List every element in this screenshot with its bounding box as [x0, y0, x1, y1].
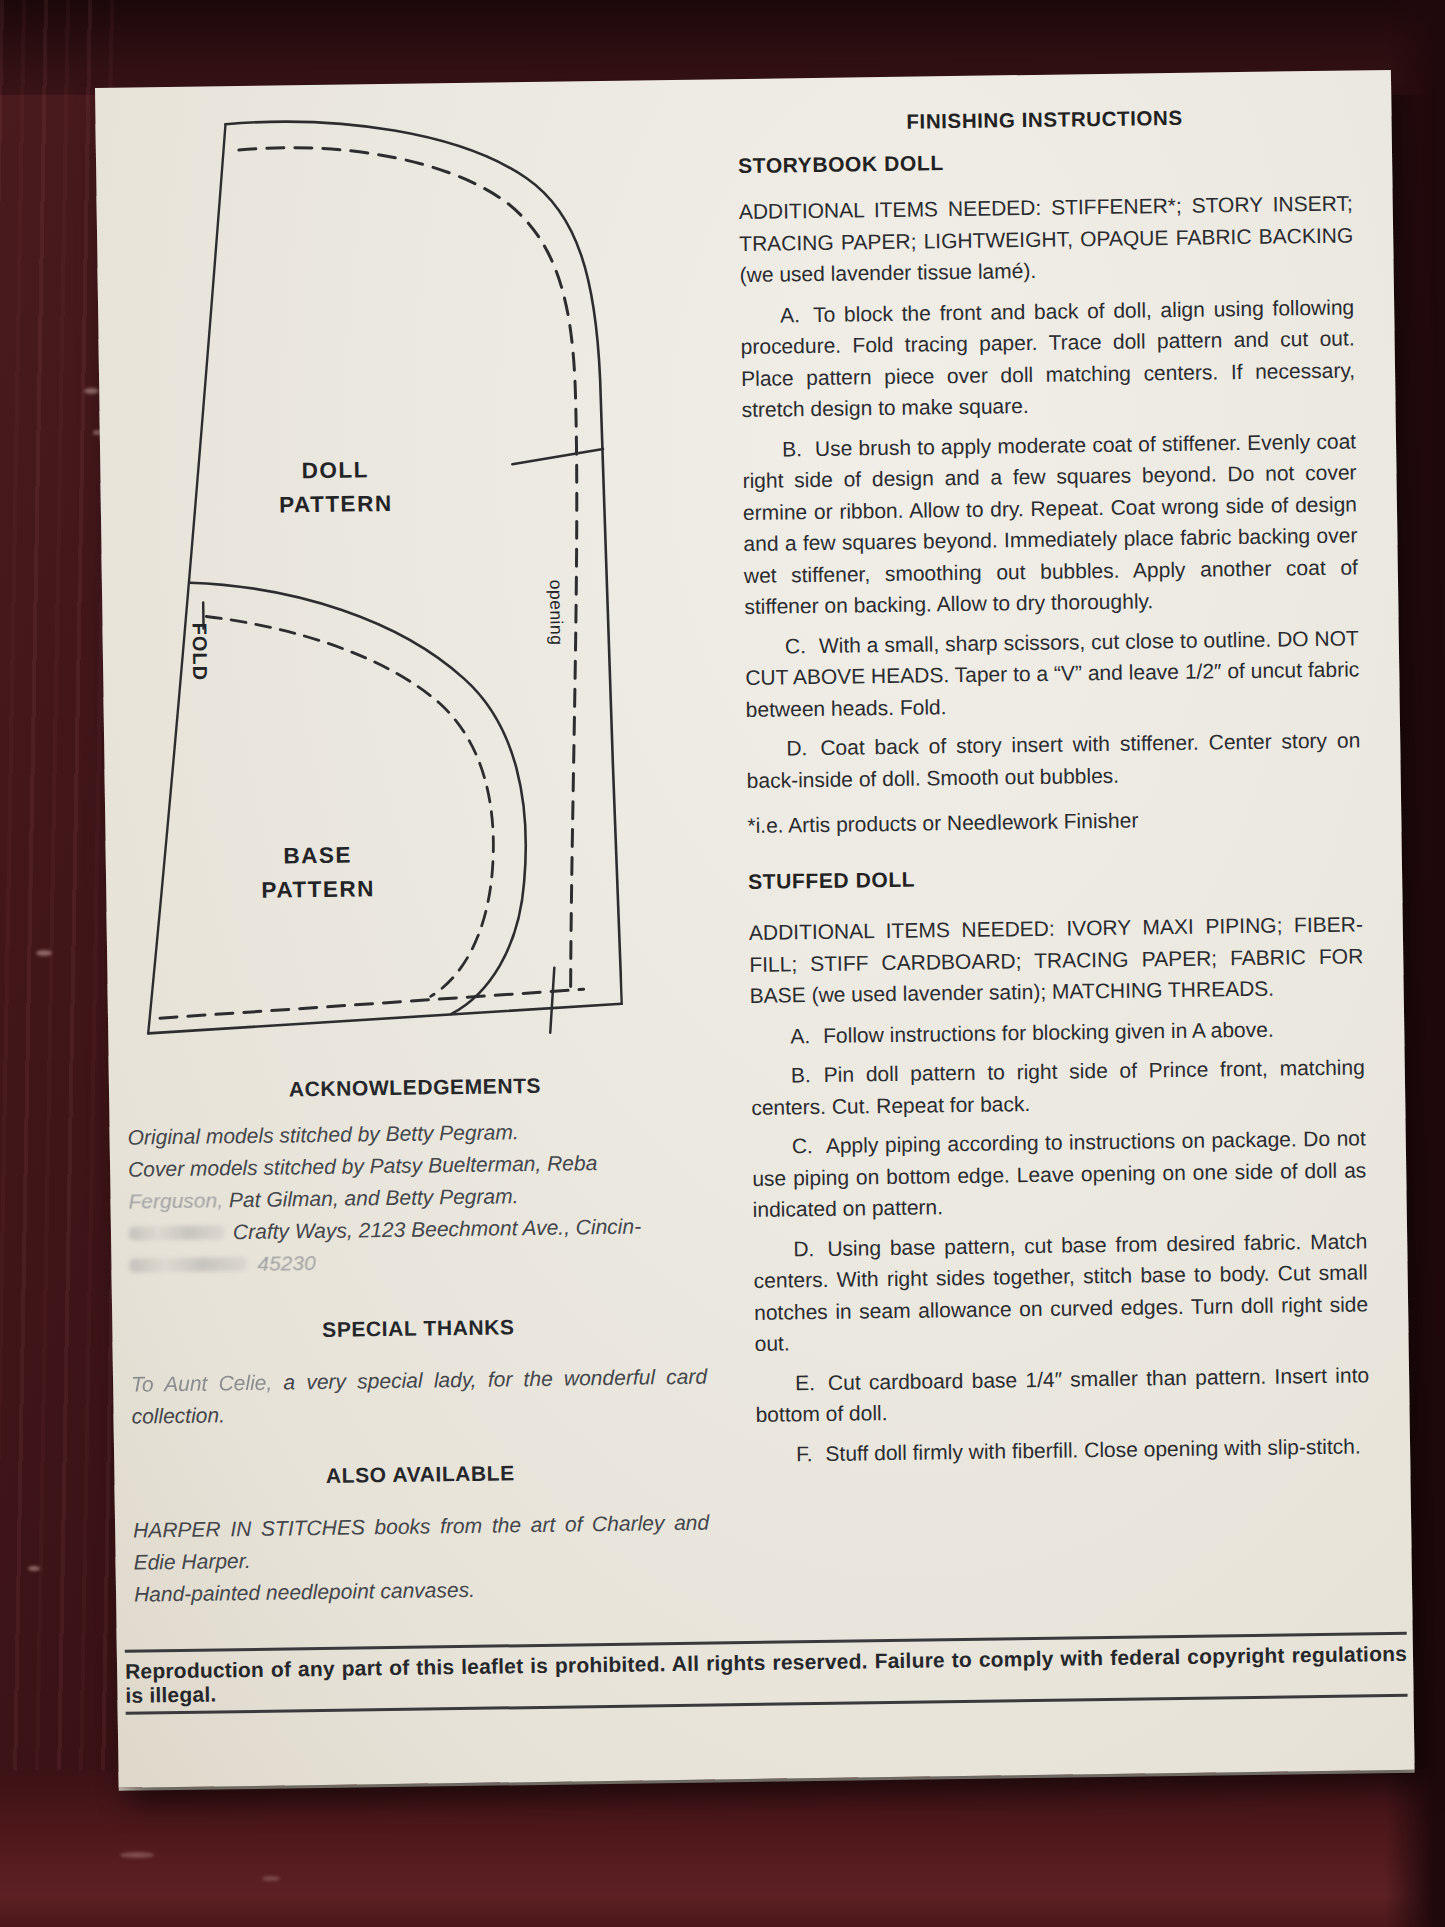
step-text: Use brush to apply moderate coat of stif…: [742, 429, 1358, 618]
wood-scratch: [84, 388, 99, 394]
step-label: A.: [790, 1024, 823, 1047]
step-label: D.: [793, 1237, 827, 1260]
step-label: E.: [795, 1371, 828, 1394]
step-label: A.: [780, 303, 813, 326]
left-text-column: ACKNOWLEDGEMENTS Original models stitche…: [127, 1068, 710, 1611]
bottom-seam-dashed-line: [160, 989, 584, 1018]
base-seam-dashed-line: [206, 613, 495, 1000]
stuffed-step-b: B.Pin doll pattern to right side of Prin…: [751, 1052, 1366, 1124]
step-label: B.: [791, 1063, 824, 1086]
leaflet-back-page: DOLL PATTERN BASE PATTERN FOLD opening A…: [95, 70, 1415, 1788]
wood-surface-bottom: [0, 1770, 1445, 1927]
step-label: F.: [796, 1442, 826, 1465]
opening-lower-tick: [549, 968, 555, 1033]
step-text: Follow instructions for blocking given i…: [823, 1017, 1274, 1046]
base-pattern-outline: [190, 578, 528, 1018]
finishing-instructions-title: FINISHING INSTRUCTIONS: [737, 100, 1351, 139]
stuffed-items-needed: ADDITIONAL ITEMS NEEDED: IVORY MAXI PIPI…: [749, 909, 1364, 1012]
step-text: Pin doll pattern to right side of Prince…: [751, 1056, 1365, 1119]
faded-text: To Aunt Celie,: [131, 1371, 272, 1396]
stuffed-step-a: A.Follow instructions for blocking given…: [750, 1012, 1364, 1052]
fold-edge-line: [136, 124, 239, 1033]
doll-pattern-label: PATTERN: [279, 491, 393, 518]
doll-base-pattern-diagram: DOLL PATTERN BASE PATTERN FOLD opening: [125, 111, 623, 1068]
step-text: Using base pattern, cut base from desire…: [754, 1229, 1369, 1355]
wood-scratch: [262, 1876, 280, 1881]
copyright-text: Reproduction of any part of this leaflet…: [125, 1642, 1408, 1715]
storybook-step-b: B.Use brush to apply moderate coat of st…: [742, 425, 1359, 623]
step-text: Cut cardboard base 1/4″ smaller than pat…: [755, 1363, 1369, 1426]
storybook-doll-heading: STORYBOOK DOLL: [738, 141, 1352, 181]
stuffed-step-e: E.Cut cardboard base 1/4″ smaller than p…: [755, 1359, 1370, 1431]
storybook-step-d: D.Coat back of story insert with stiffen…: [746, 725, 1361, 797]
opening-label: opening: [546, 579, 567, 645]
opening-upper-tick: [512, 449, 603, 464]
base-pattern-label: BASE: [283, 842, 352, 868]
finishing-instructions-column: FINISHING INSTRUCTIONS STORYBOOK DOLL AD…: [737, 100, 1370, 1478]
step-text: With a small, sharp scissors, cut close …: [745, 626, 1359, 721]
stuffed-doll-heading: STUFFED DOLL: [748, 857, 1362, 897]
wood-scratch: [36, 950, 52, 956]
copyright-notice-band: Reproduction of any part of this leaflet…: [125, 1632, 1408, 1715]
wood-scratch: [28, 1566, 40, 1571]
photo-of-leaflet: { "photo": { "wood_color": "#381114", "p…: [0, 0, 1445, 1927]
doll-pattern-label: DOLL: [302, 457, 370, 483]
stuffed-step-d: D.Using base pattern, cut base from desi…: [753, 1225, 1369, 1360]
stuffed-step-f: F.Stuff doll firmly with fiberfill. Clos…: [756, 1430, 1370, 1470]
also-available-line: Hand-painted needlepoint canvases.: [134, 1570, 710, 1610]
acknowledgements-heading: ACKNOWLEDGEMENTS: [127, 1068, 703, 1108]
step-label: D.: [786, 736, 820, 759]
step-text: To block the front and back of doll, ali…: [741, 295, 1356, 421]
faded-illegible-text: [129, 1225, 225, 1240]
fold-label: FOLD: [188, 622, 211, 681]
base-pattern-label: PATTERN: [261, 876, 375, 903]
also-available-heading: ALSO AVAILABLE: [132, 1455, 708, 1495]
step-label: C.: [792, 1134, 826, 1157]
special-thanks-body: To Aunt Celie, a very special lady, for …: [131, 1361, 708, 1433]
special-thanks-heading: SPECIAL THANKS: [130, 1309, 706, 1349]
stiffener-footnote: *i.e. Artis products or Needlework Finis…: [747, 802, 1361, 842]
storybook-items-needed: ADDITIONAL ITEMS NEEDED: STIFFENER*; STO…: [739, 188, 1354, 291]
storybook-step-c: C.With a small, sharp scissors, cut clos…: [745, 622, 1360, 725]
doll-pattern-outline: [225, 117, 621, 1009]
faded-text: Ferguson,: [128, 1188, 223, 1212]
stuffed-step-c: C.Apply piping according to instructions…: [752, 1123, 1367, 1226]
step-text: Stuff doll firmly with fiberfill. Close …: [825, 1434, 1361, 1464]
faded-illegible-text: [129, 1257, 247, 1273]
wood-scratch: [120, 1852, 154, 1858]
also-available-line: HARPER IN STITCHES books from the art of…: [133, 1507, 710, 1579]
faded-text: 45230: [257, 1251, 316, 1275]
step-text: Coat back of story insert with stiffener…: [747, 729, 1361, 792]
step-label: B.: [782, 437, 815, 460]
storybook-step-a: A.To block the front and back of doll, a…: [740, 291, 1356, 426]
step-label: C.: [785, 634, 819, 657]
step-text: Apply piping according to instructions o…: [752, 1127, 1366, 1222]
